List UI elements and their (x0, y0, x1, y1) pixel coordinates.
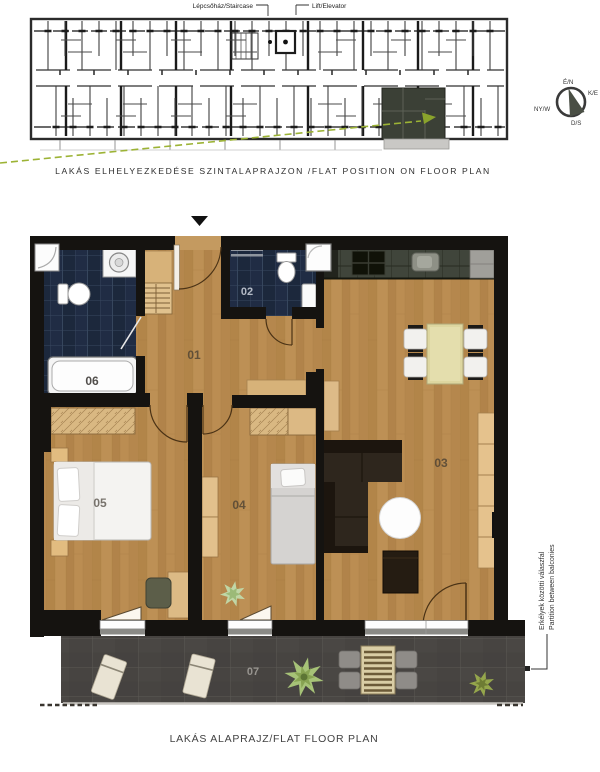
svg-text:Erkélyek közötti válaszfal: Erkélyek közötti válaszfal (539, 551, 546, 630)
svg-text:Partition between balconies: Partition between balconies (549, 544, 556, 630)
svg-text:É/N: É/N (563, 79, 573, 86)
svg-text:Lépcsőház/Staircase: Lépcsőház/Staircase (193, 3, 254, 10)
svg-text:01: 01 (187, 348, 201, 362)
svg-text:07: 07 (247, 666, 259, 678)
svg-text:05: 05 (93, 496, 107, 510)
svg-text:D/S: D/S (571, 120, 581, 127)
svg-text:K/E: K/E (588, 90, 598, 97)
svg-text:04: 04 (232, 498, 246, 512)
svg-text:03: 03 (434, 456, 448, 470)
svg-text:06: 06 (85, 374, 99, 388)
svg-text:LAKÁS ELHELYEZKEDÉSE SZINTALAP: LAKÁS ELHELYEZKEDÉSE SZINTALAPRAJZON /FL… (55, 166, 491, 176)
svg-text:02: 02 (241, 286, 253, 298)
svg-text:NY/W: NY/W (534, 106, 550, 113)
svg-text:Lift/Elevator: Lift/Elevator (312, 3, 347, 10)
svg-text:LAKÁS ALAPRAJZ/FLAT FLOOR PLAN: LAKÁS ALAPRAJZ/FLAT FLOOR PLAN (170, 732, 379, 745)
